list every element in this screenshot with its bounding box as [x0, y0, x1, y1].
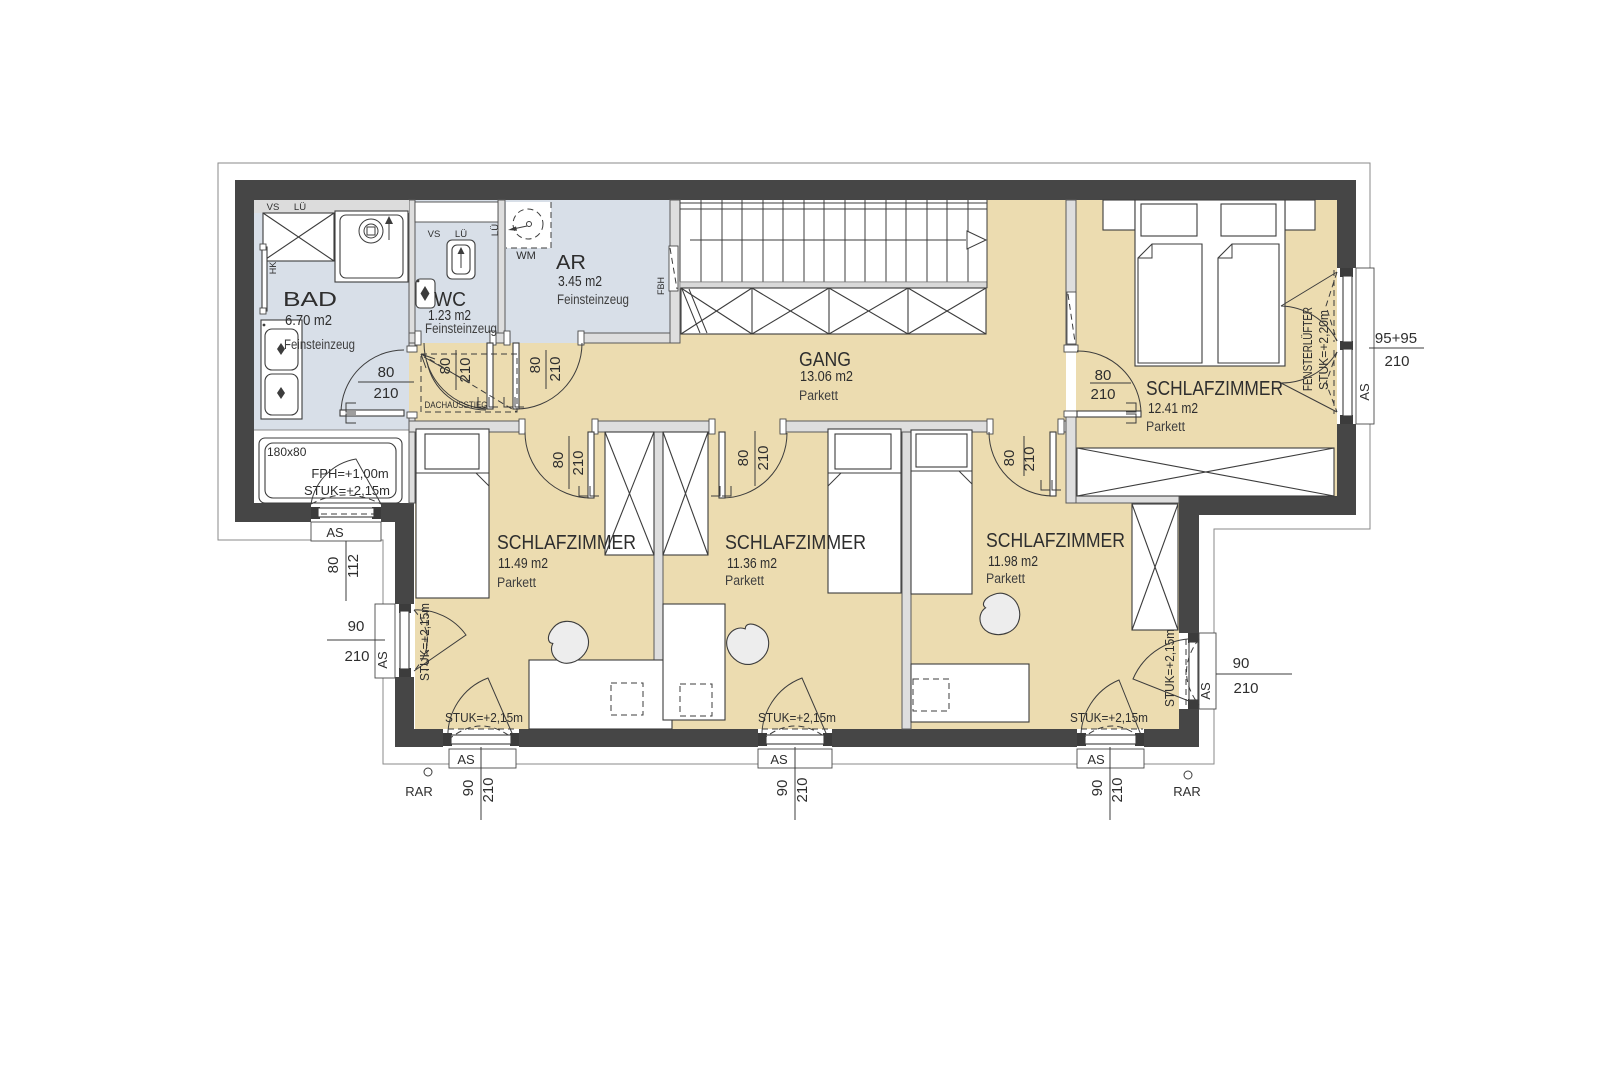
svg-text:DACHAUSSTIEG: DACHAUSSTIEG: [425, 400, 488, 411]
svg-text:210: 210: [570, 450, 587, 475]
svg-text:90: 90: [348, 618, 365, 635]
svg-text:FENSTERLÜFTER: FENSTERLÜFTER: [1300, 307, 1315, 391]
svg-text:Parkett: Parkett: [986, 571, 1025, 586]
svg-text:Parkett: Parkett: [725, 573, 764, 588]
svg-text:BAD: BAD: [283, 289, 337, 311]
svg-text:RAR: RAR: [405, 784, 432, 799]
svg-text:AS: AS: [326, 525, 344, 540]
svg-text:VS: VS: [267, 202, 280, 213]
svg-text:RAR: RAR: [1173, 784, 1200, 799]
svg-text:11.98 m2: 11.98 m2: [988, 554, 1038, 570]
svg-text:112: 112: [345, 554, 362, 578]
svg-text:210: 210: [1090, 386, 1115, 403]
svg-text:90: 90: [460, 780, 477, 797]
svg-text:AR: AR: [556, 252, 586, 274]
svg-text:FBH: FBH: [656, 277, 666, 295]
svg-text:210: 210: [1021, 446, 1038, 471]
svg-text:AS: AS: [375, 651, 390, 669]
svg-text:SCHLAFZIMMER: SCHLAFZIMMER: [497, 532, 636, 554]
svg-text:80: 80: [325, 557, 342, 574]
svg-text:90: 90: [1233, 655, 1250, 672]
svg-text:STUK=+2,15m: STUK=+2,15m: [445, 710, 523, 725]
svg-text:3.45 m2: 3.45 m2: [558, 274, 602, 290]
svg-text:80: 80: [527, 357, 544, 374]
svg-text:13.06 m2: 13.06 m2: [800, 369, 853, 385]
svg-text:80: 80: [1001, 450, 1018, 467]
svg-text:210: 210: [373, 385, 398, 402]
svg-text:80: 80: [550, 452, 567, 469]
svg-text:STUK=+2,20m: STUK=+2,20m: [1316, 310, 1331, 390]
svg-text:210: 210: [344, 648, 369, 665]
svg-text:6.70 m2: 6.70 m2: [285, 313, 332, 329]
svg-text:210: 210: [1109, 777, 1126, 802]
svg-text:AS: AS: [457, 752, 475, 767]
svg-text:210: 210: [457, 357, 474, 382]
svg-text:80: 80: [378, 364, 395, 381]
svg-text:Feinsteinzeug: Feinsteinzeug: [557, 292, 629, 307]
svg-text:95+95: 95+95: [1375, 330, 1417, 347]
svg-text:AS: AS: [770, 752, 788, 767]
svg-text:LÜ: LÜ: [490, 224, 501, 236]
svg-text:AS: AS: [1087, 752, 1105, 767]
svg-text:12.41 m2: 12.41 m2: [1148, 401, 1198, 417]
svg-text:Feinsteinzeug: Feinsteinzeug: [284, 337, 355, 352]
svg-text:SCHLAFZIMMER: SCHLAFZIMMER: [1146, 378, 1283, 400]
svg-text:SCHLAFZIMMER: SCHLAFZIMMER: [986, 530, 1125, 552]
svg-text:SCHLAFZIMMER: SCHLAFZIMMER: [725, 532, 866, 554]
svg-text:210: 210: [794, 777, 811, 802]
svg-text:LÜ: LÜ: [455, 229, 467, 240]
svg-text:Parkett: Parkett: [1146, 419, 1185, 434]
svg-text:STUK=+2,15m: STUK=+2,15m: [1070, 710, 1148, 725]
svg-text:STUK=+2,15m: STUK=+2,15m: [758, 710, 836, 725]
svg-text:Parkett: Parkett: [799, 388, 838, 403]
svg-text:HK: HK: [268, 262, 278, 275]
svg-text:AS: AS: [1198, 682, 1213, 700]
svg-text:11.36 m2: 11.36 m2: [727, 556, 777, 572]
svg-text:AS: AS: [1357, 383, 1372, 401]
svg-text:90: 90: [1089, 780, 1106, 797]
svg-text:VS: VS: [428, 229, 441, 240]
svg-text:210: 210: [480, 777, 497, 802]
svg-text:210: 210: [1233, 680, 1258, 697]
svg-text:GANG: GANG: [799, 349, 851, 371]
svg-text:80: 80: [735, 450, 752, 467]
svg-text:210: 210: [1384, 353, 1409, 370]
svg-text:LÜ: LÜ: [294, 202, 306, 213]
svg-text:STUK=+2,15m: STUK=+2,15m: [1162, 629, 1177, 707]
svg-text:210: 210: [547, 356, 564, 381]
svg-text:STUK=+2,15m: STUK=+2,15m: [417, 603, 432, 681]
svg-text:STUK=+2,15m: STUK=+2,15m: [304, 483, 390, 498]
svg-text:11.49 m2: 11.49 m2: [498, 556, 548, 572]
svg-text:90: 90: [774, 780, 791, 797]
svg-text:210: 210: [755, 445, 772, 470]
svg-text:WM: WM: [516, 250, 536, 262]
svg-text:Feinsteinzeug: Feinsteinzeug: [425, 321, 497, 336]
svg-text:80: 80: [1095, 367, 1112, 384]
svg-text:180x80: 180x80: [267, 445, 307, 459]
svg-text:Parkett: Parkett: [497, 575, 536, 590]
